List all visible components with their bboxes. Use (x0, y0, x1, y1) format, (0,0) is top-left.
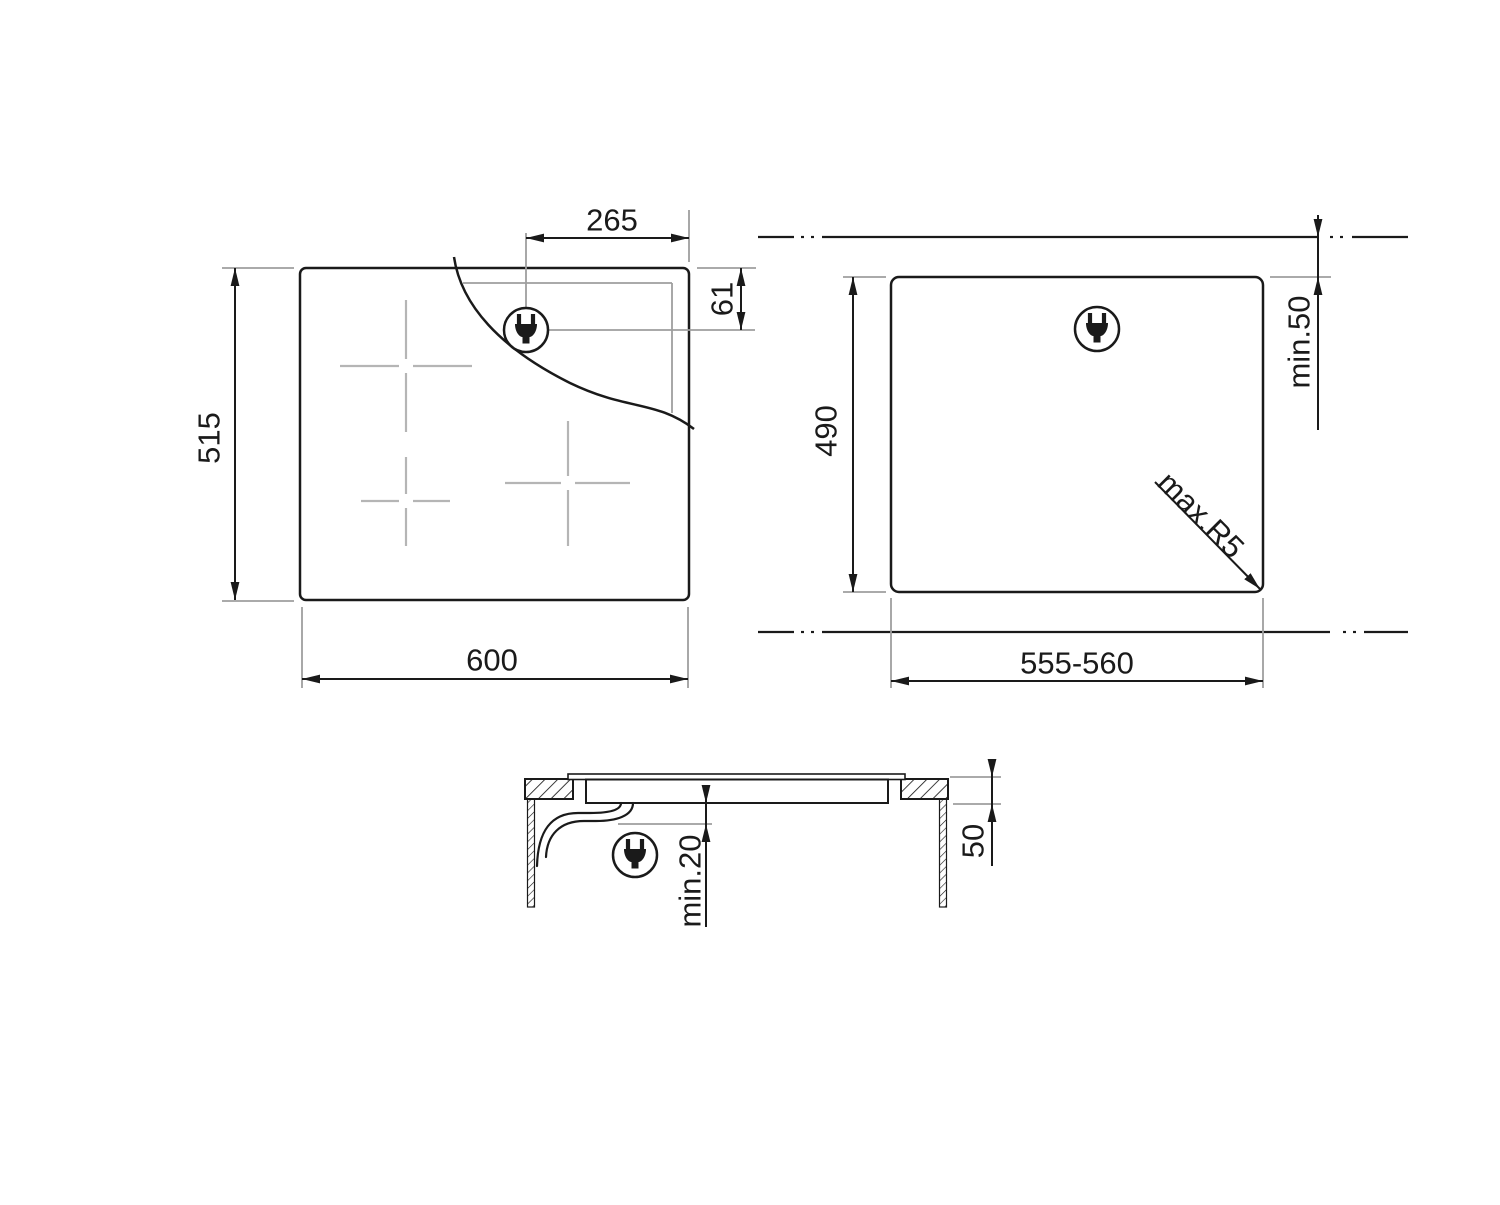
dim-label-490: 490 (809, 405, 844, 457)
section-view: min.20 50 (525, 762, 1001, 928)
cabinet-wall-right (940, 799, 947, 907)
worktop-section-left (525, 779, 573, 799)
dim-recess-depth: 50 (950, 762, 1001, 866)
dim-label-min20: min.20 (673, 834, 708, 927)
dim-label-min50: min.50 (1282, 295, 1317, 388)
power-plug-icon (1075, 307, 1119, 351)
hob-outline (300, 268, 689, 600)
dim-min-edge-distance: min.50 (1270, 215, 1331, 430)
dim-label-50: 50 (956, 824, 991, 858)
dim-label-515: 515 (192, 412, 227, 464)
worktop-cutout-view: 490 555-560 min.50 max.R5 (758, 215, 1408, 688)
dim-plug-offset-y: 61 (697, 268, 756, 330)
dim-hob-height: 515 (192, 268, 295, 601)
hob-installation-diagram: 265 61 515 600 (0, 0, 1500, 1200)
dim-cutout-height: 490 (809, 277, 887, 592)
dim-label-61: 61 (705, 282, 740, 316)
dim-label-600: 600 (466, 643, 518, 678)
hob-top-view: 265 61 515 600 (192, 203, 757, 689)
cabinet-wall-left (528, 799, 535, 907)
power-plug-icon (504, 308, 548, 352)
worktop-section-right (901, 779, 948, 799)
dim-label-555-560: 555-560 (1020, 646, 1134, 681)
hob-installation-page: 265 61 515 600 (0, 0, 1500, 1200)
dim-hob-width: 600 (302, 607, 688, 688)
dim-cutout-width: 555-560 (891, 598, 1263, 688)
dim-plug-offset-x: 265 (526, 203, 689, 263)
hob-body (586, 780, 888, 804)
dim-label-265: 265 (586, 203, 638, 238)
power-plug-icon (613, 833, 657, 877)
